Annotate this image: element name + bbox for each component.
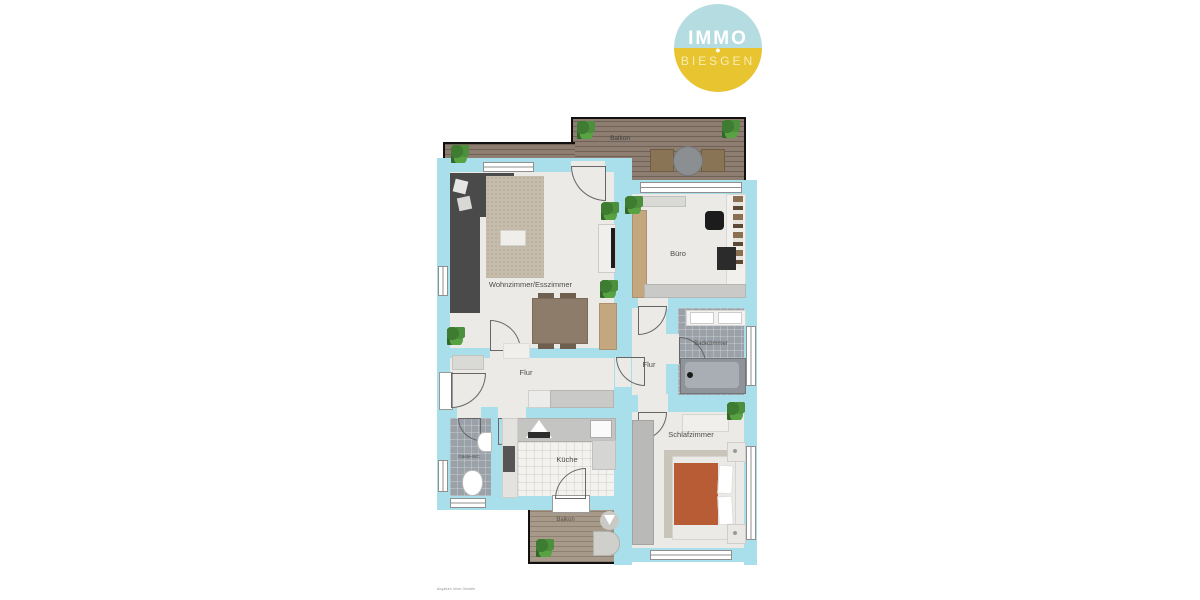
dining-table <box>532 298 588 344</box>
window <box>483 162 534 172</box>
door-opening <box>638 394 668 413</box>
toilet <box>462 470 483 496</box>
sofa-pillow <box>457 196 472 211</box>
room-label-schlafzimmer: Schlafzimmer <box>652 430 730 439</box>
room-label-flur: Flur <box>508 368 544 377</box>
plant-icon <box>577 121 595 139</box>
hall-cabinet <box>452 355 484 370</box>
room-label-badezimmer: Badezimmer <box>683 341 739 347</box>
floorplan-page: IMMO ● BIESGEN <box>0 0 1200 600</box>
window <box>746 326 756 386</box>
kitchen-sink <box>590 420 612 438</box>
plant-icon <box>447 327 465 345</box>
balcony-chair <box>701 149 725 172</box>
tv <box>611 228 615 268</box>
stove <box>528 432 550 438</box>
office-sideboard <box>644 284 746 298</box>
room-label-wohnzimmer: Wohnzimmer/Esszimmer <box>468 280 593 289</box>
disclaimer-text: Angaben ohne Gewähr <box>437 587 476 591</box>
wardrobe <box>632 420 654 545</box>
bench <box>599 303 617 350</box>
room-label-balkon-unten: Balkon <box>543 517 588 523</box>
bed-cover <box>674 463 718 525</box>
bathtub-inner <box>685 362 739 388</box>
office-chair <box>705 211 724 230</box>
balcony-chair <box>650 149 674 172</box>
plant-icon <box>722 120 740 138</box>
bed-pillow <box>717 465 733 495</box>
bed-pillow <box>717 496 733 526</box>
door-opening <box>666 334 679 364</box>
floorplan: Balkon Wohnzimmer/Esszimmer Büro Badezim… <box>0 0 1200 600</box>
window <box>450 498 486 508</box>
area-rug <box>486 176 544 278</box>
plant-icon <box>451 145 469 163</box>
room-label-kueche: Küche <box>537 455 597 464</box>
plant-icon <box>601 202 619 220</box>
nightstand-knob <box>733 531 737 535</box>
plant-icon <box>727 402 745 420</box>
room-label-flur-klein: Flur <box>632 360 666 369</box>
window <box>650 550 732 560</box>
room-label-gaeste-wc: Gäste-WC <box>447 454 491 459</box>
hall-sideboard <box>528 390 552 408</box>
bath-sink <box>718 312 742 324</box>
window <box>438 266 448 296</box>
plant-icon <box>600 280 618 298</box>
bathtub-faucet-icon <box>687 372 693 378</box>
window <box>640 182 742 193</box>
bath-sink <box>690 312 714 324</box>
doormat <box>503 343 530 359</box>
lounge-chair <box>593 531 620 556</box>
balcony-table <box>673 146 703 176</box>
window <box>438 460 448 492</box>
nightstand-knob <box>733 449 737 453</box>
oven <box>503 446 515 472</box>
office-shelf <box>642 196 686 207</box>
coffee-table <box>500 230 526 246</box>
room-label-balkon-oben: Balkon <box>595 135 645 142</box>
hall-sideboard <box>550 390 614 408</box>
printer <box>717 247 736 270</box>
plant-icon <box>536 539 554 557</box>
plant-icon <box>625 196 643 214</box>
room-label-buero: Büro <box>658 249 698 258</box>
window <box>746 446 756 540</box>
wc-sink <box>477 432 492 452</box>
